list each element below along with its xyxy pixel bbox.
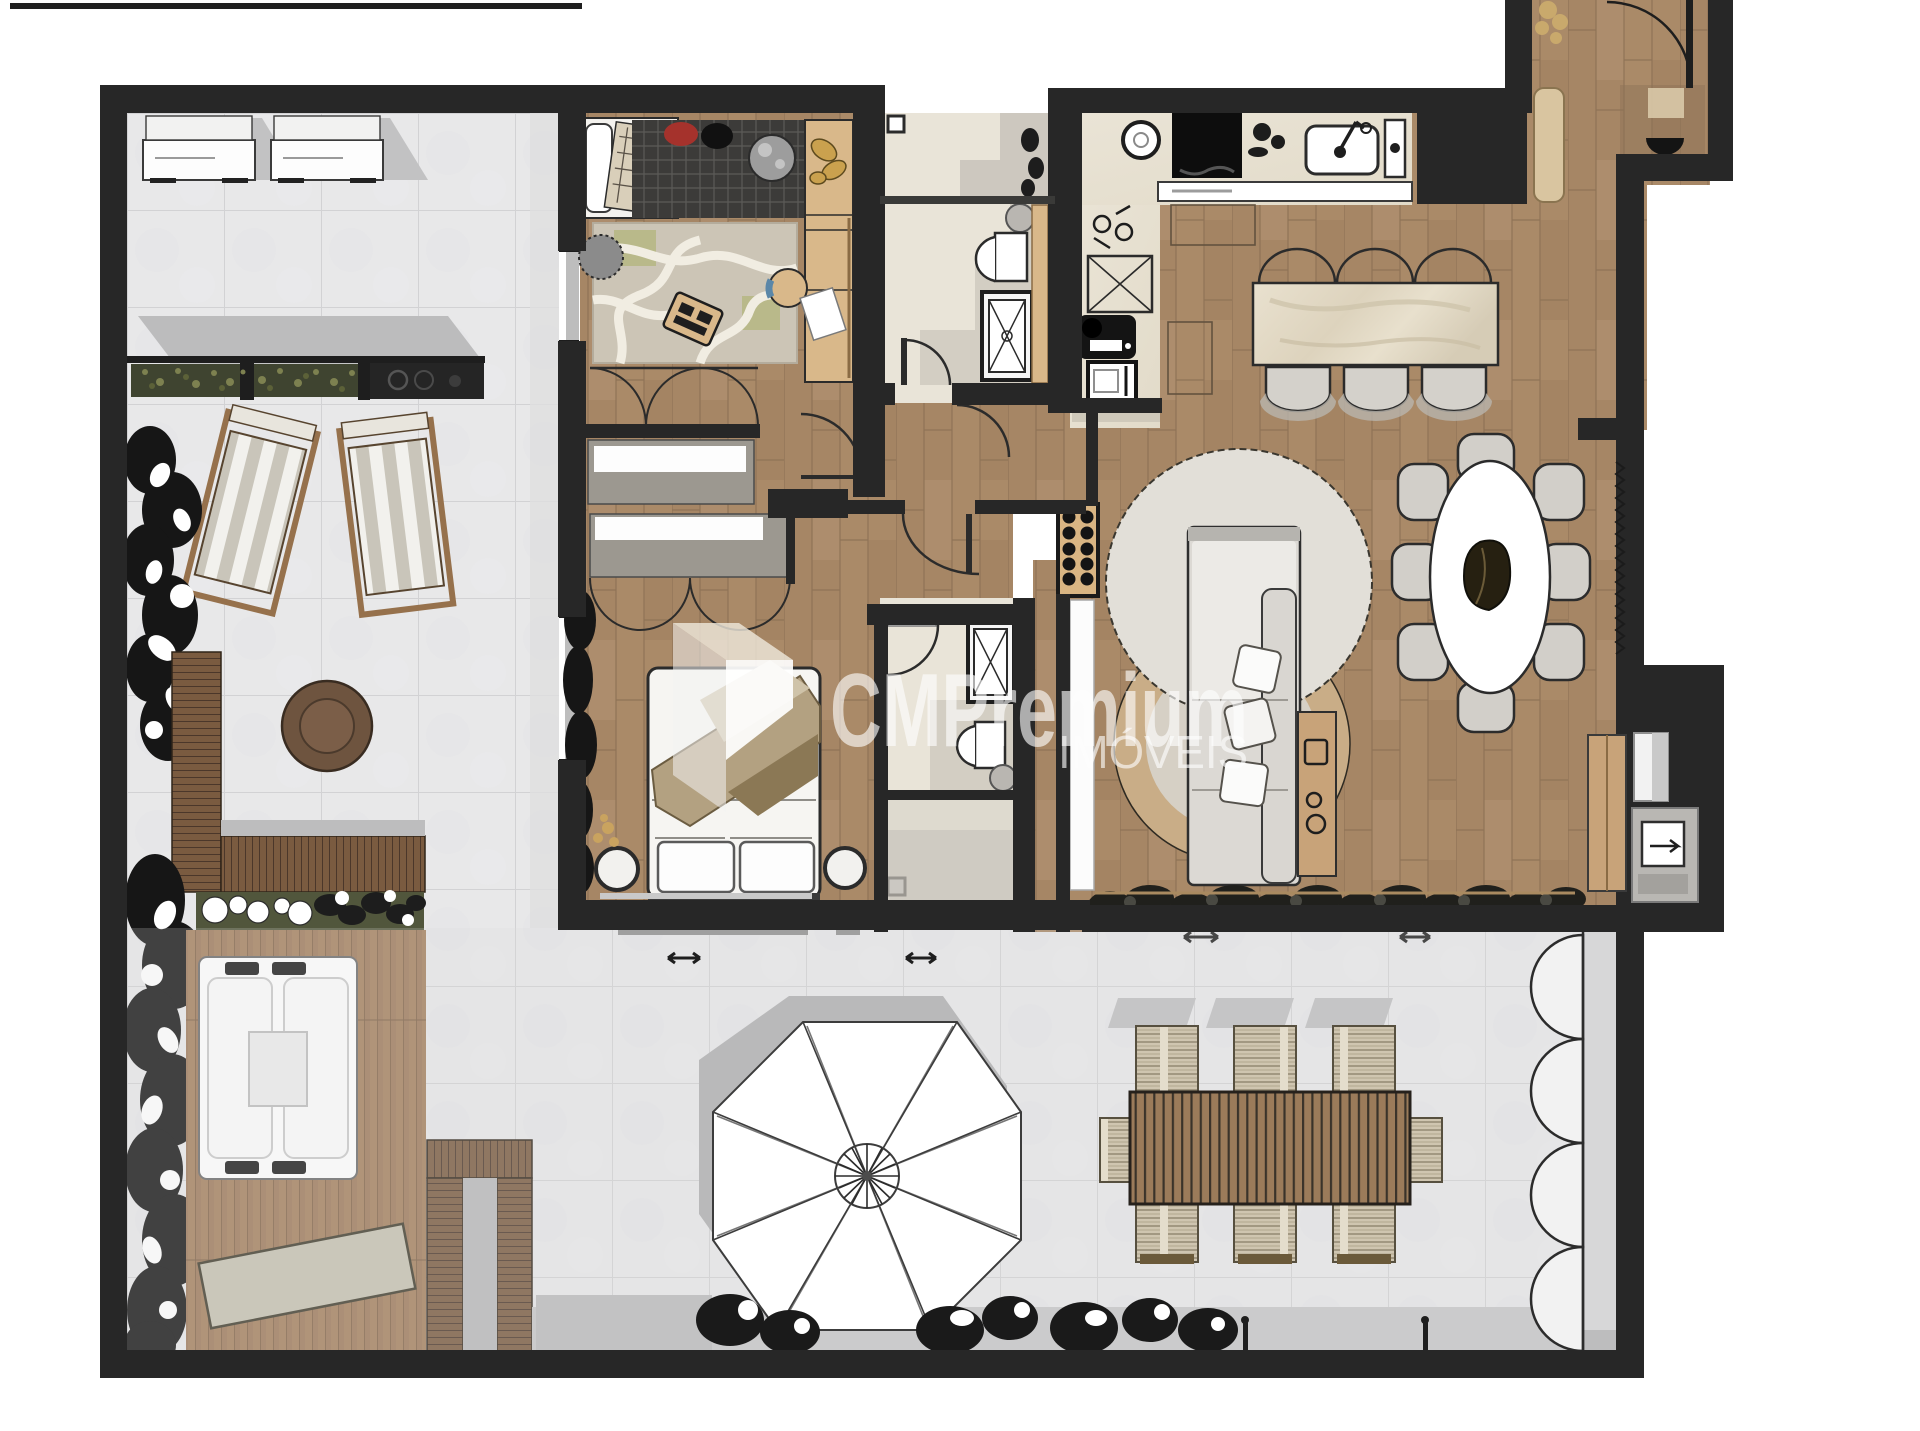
svg-text:IMÓVEIS: IMÓVEIS <box>1058 726 1248 778</box>
